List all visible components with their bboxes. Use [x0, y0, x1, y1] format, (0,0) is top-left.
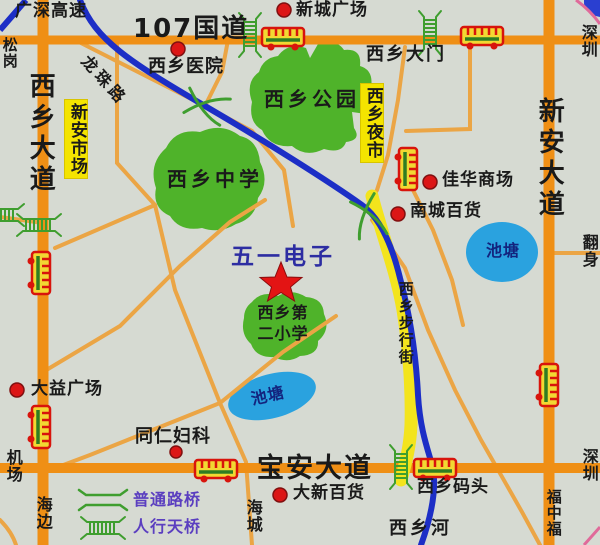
- label-fuzhongfu: 福中福: [545, 489, 561, 537]
- label-haicheng: 海城: [244, 499, 261, 533]
- label-nancheng-store: 南城百货: [410, 203, 482, 221]
- label-airport: 机场: [4, 449, 21, 483]
- poi-dot-marker: [423, 175, 437, 189]
- label-primary-school: 西乡第 二小学: [241, 303, 325, 345]
- bus-icon: [536, 364, 559, 406]
- poi-dot-marker: [391, 207, 405, 221]
- label-hospital: 西乡医院: [148, 58, 224, 77]
- label-xixiang-avenue: 西乡大道: [26, 72, 53, 196]
- corner-line-bottom-right: [584, 527, 600, 545]
- label-jiahua-mall: 佳华商场: [442, 172, 514, 190]
- bus-icon: [461, 27, 503, 50]
- label-river: 西乡河: [389, 520, 452, 539]
- label-xinan-market: 新安市场: [65, 100, 87, 178]
- legend-road-bridge-label: 普通路桥: [133, 492, 201, 509]
- label-xixiang-park: 西乡公园: [264, 89, 360, 110]
- legend-pedestrian-bridge-label: 人行天桥: [133, 519, 201, 536]
- label-seaside: 海边: [34, 496, 51, 530]
- bus-icon: [395, 148, 418, 190]
- poi-dot-marker: [170, 446, 182, 458]
- label-daxin-store: 大新百货: [293, 485, 365, 503]
- label-expressway: 广深高速: [15, 3, 87, 21]
- poi-dot-marker: [277, 3, 291, 17]
- bus-icon: [28, 252, 51, 294]
- xixiang-map: 广深高速 松岗 107国道 新城广场 西乡医院 龙珠路 西乡大门 深圳 西乡大道…: [0, 0, 600, 545]
- label-songgang: 松岗: [1, 37, 17, 69]
- legend-road-bridge-icon: [79, 490, 127, 510]
- label-pond-right: 池塘: [486, 243, 520, 260]
- label-wharf: 西乡码头: [417, 479, 489, 497]
- label-dayi-plaza: 大益广场: [31, 381, 103, 399]
- label-wuyi-electronics: 五一电子: [231, 245, 335, 269]
- legend-pedestrian-bridge-icon: [81, 517, 125, 539]
- label-xincheng-plaza: 新城广场: [296, 2, 368, 20]
- bus-icon: [262, 28, 304, 51]
- bus-icon: [195, 460, 237, 483]
- poi-dot-marker: [171, 42, 185, 56]
- bus-icon: [28, 406, 51, 448]
- label-primary-school-line2: 二小学: [257, 324, 308, 343]
- label-xinan-avenue: 新安大道: [535, 97, 562, 221]
- label-night-market: 西乡夜市: [361, 84, 383, 162]
- label-tongren: 同仁妇科: [135, 428, 211, 447]
- label-fanshen: 翻身: [580, 234, 597, 268]
- label-g107: 107国道: [133, 16, 249, 43]
- poi-dot-marker: [10, 383, 24, 397]
- label-primary-school-line1: 西乡第: [257, 303, 308, 322]
- label-shenzhen-top: 深圳: [579, 24, 596, 58]
- label-baoan-avenue: 宝安大道: [257, 455, 373, 483]
- label-middle-school: 西乡中学: [167, 169, 263, 190]
- label-shenzhen-bottom: 深圳: [580, 448, 597, 482]
- pedestrian-bridge-icon: [0, 204, 24, 226]
- poi-dot-marker: [273, 488, 287, 502]
- label-pedestrian-street: 西乡步行街: [397, 281, 413, 366]
- label-xixiang-gate: 西乡大门: [366, 46, 446, 65]
